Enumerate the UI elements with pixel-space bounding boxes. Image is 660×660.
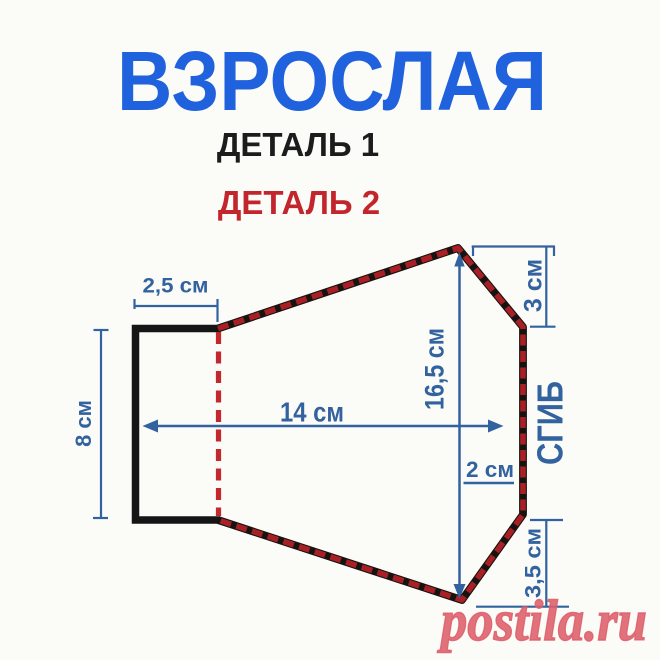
svg-text:16,5 см: 16,5 см (420, 328, 450, 410)
svg-text:8 см: 8 см (71, 400, 96, 447)
svg-text:3 см: 3 см (520, 259, 548, 312)
svg-text:ДЕТАЛЬ 2: ДЕТАЛЬ 2 (218, 184, 380, 221)
svg-text:2 см: 2 см (466, 457, 514, 482)
svg-text:СГИБ: СГИБ (530, 381, 571, 465)
svg-text:2,5 см: 2,5 см (143, 275, 209, 298)
svg-text:postila.ru: postila.ru (436, 588, 647, 653)
svg-text:14 см: 14 см (280, 397, 344, 428)
svg-text:ДЕТАЛЬ 1: ДЕТАЛЬ 1 (217, 126, 379, 163)
svg-text:ВЗРОСЛАЯ: ВЗРОСЛАЯ (117, 34, 547, 128)
